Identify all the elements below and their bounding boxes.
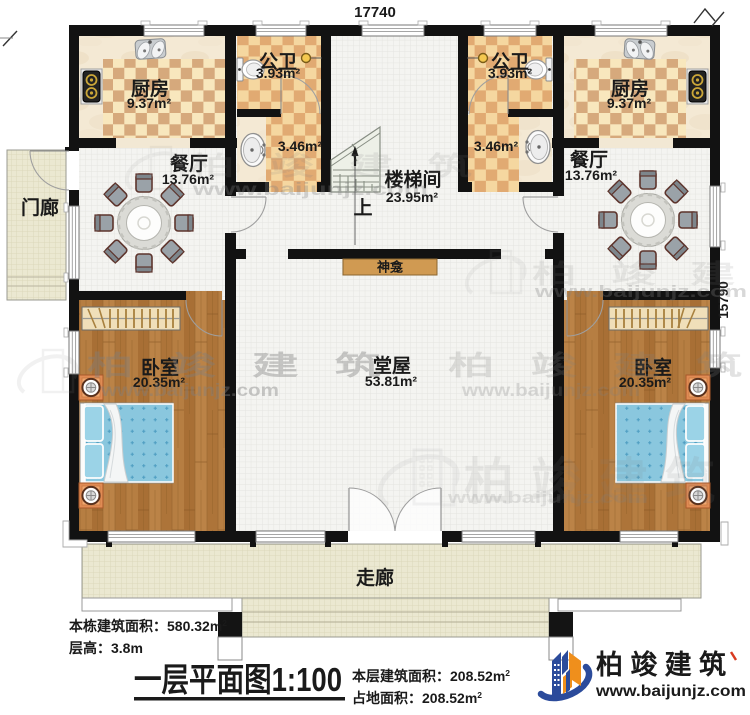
svg-text:柏竣建筑: 柏竣建筑 [448,352,750,382]
svg-text:神龛: 神龛 [377,260,404,275]
svg-text:层高：3.8m: 层高：3.8m [69,640,143,656]
svg-text:走廊: 走廊 [356,566,394,589]
svg-text:www.baijunjz.com: www.baijunjz.com [100,380,279,400]
svg-text:门廊: 门廊 [21,196,59,219]
svg-text:柏竣建筑: 柏竣建筑 [190,152,506,181]
svg-text:www.baijunjz.com: www.baijunjz.com [461,380,640,400]
svg-text:3.93m²: 3.93m² [488,65,533,81]
svg-text:www.baijunjz.com: www.baijunjz.com [534,282,747,301]
svg-text:本层建筑面积：208.52m2: 本层建筑面积：208.52m2 [352,668,510,684]
svg-text:上: 上 [353,197,372,219]
svg-text:9.37m²: 9.37m² [127,95,172,111]
svg-text:3.93m²: 3.93m² [256,65,301,81]
svg-text:www.baijunjz.com: www.baijunjz.com [447,488,648,507]
svg-text:13.76m²: 13.76m² [565,167,617,183]
svg-text:17740: 17740 [354,4,396,21]
svg-text:本栋建筑面积：580.32m2: 本栋建筑面积：580.32m2 [69,618,227,634]
svg-text:占地面积：208.52m2: 占地面积：208.52m2 [352,690,482,706]
svg-text:一层平面图1:100: 一层平面图1:100 [134,661,342,698]
svg-text:柏竣建筑: 柏竣建筑 [87,352,417,382]
svg-text:www.baijunjz.com: www.baijunjz.com [191,179,428,199]
svg-text:9.37m²: 9.37m² [607,95,652,111]
svg-text:www.baijunjz.com: www.baijunjz.com [595,683,746,700]
